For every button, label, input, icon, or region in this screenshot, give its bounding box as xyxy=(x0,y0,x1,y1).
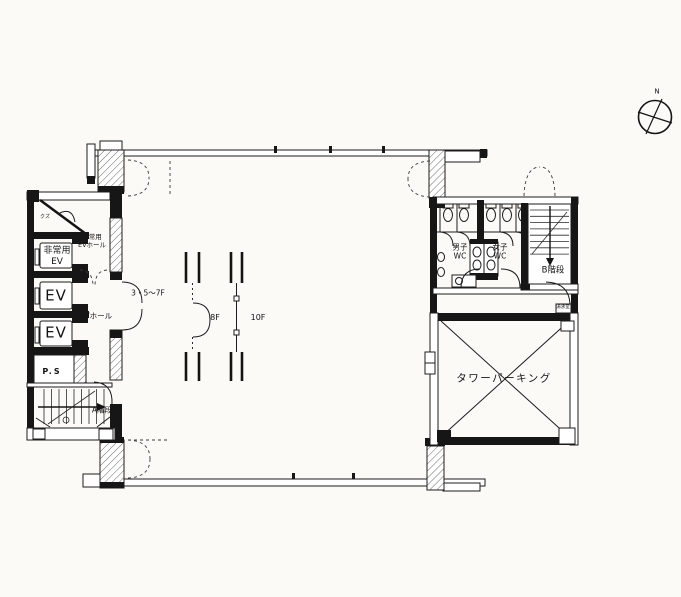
right-outer-wall xyxy=(571,197,578,313)
parking-top-wall xyxy=(435,313,577,321)
label-floors-3-5-7: 3・5〜7F xyxy=(131,288,165,297)
bottom-wall xyxy=(85,479,485,486)
pipe-shaft-room xyxy=(27,355,112,387)
door-arc xyxy=(408,179,430,197)
label-womens-wc: 女子 WC xyxy=(493,243,508,262)
column xyxy=(98,150,124,192)
door-arc xyxy=(128,178,149,196)
label-emergency-ev: 非常用 EV xyxy=(43,246,70,269)
label-emergency-ev-hall: 非常用 EVホール xyxy=(78,233,106,249)
counterweight xyxy=(35,288,39,304)
parking-right-wall xyxy=(570,313,578,445)
parking-left-wall xyxy=(430,313,438,445)
label-ev-2: EV xyxy=(45,324,67,343)
label-ev-1: EV xyxy=(45,287,67,306)
partition-10f xyxy=(231,252,242,381)
toilet-top-wall xyxy=(433,197,578,204)
column xyxy=(100,440,124,488)
stair-b xyxy=(521,203,578,290)
column xyxy=(429,150,445,198)
label-trash-room: クズ xyxy=(40,214,50,220)
door-arc xyxy=(193,320,210,337)
label-floor-8: 8F xyxy=(210,313,220,323)
label-pipe-shaft: P.S xyxy=(42,367,61,377)
floor-plan-linework xyxy=(0,0,681,597)
door-arc xyxy=(128,440,150,459)
door-arc xyxy=(540,167,555,196)
floor-plan-drawing: クズ 非常用 EVホール 非常用 EV EV EVホール 3・5〜7F EV P… xyxy=(0,0,681,597)
parking-bottom-wall xyxy=(437,437,578,445)
label-floor-10: 10F xyxy=(251,313,266,323)
label-tower-parking: タワーパーキング xyxy=(456,372,552,385)
label-north: N xyxy=(654,88,659,97)
exterior-walls xyxy=(83,141,487,491)
north-compass-icon xyxy=(638,99,672,134)
door-arc xyxy=(193,303,210,320)
door-arc xyxy=(128,459,150,478)
door-arc xyxy=(408,161,430,179)
counterweight xyxy=(35,327,39,343)
urinals xyxy=(438,253,445,277)
core-top-wall xyxy=(27,192,110,200)
counterweight xyxy=(35,249,39,265)
door-arc xyxy=(128,160,149,178)
top-wall xyxy=(88,150,487,156)
toilet-left-wall xyxy=(430,197,437,320)
wc-door-arc xyxy=(501,269,520,288)
door-arc xyxy=(524,167,540,196)
column xyxy=(427,446,444,490)
arrow-tail xyxy=(63,417,69,423)
label-kitchenette: 湯沸室 xyxy=(556,305,570,311)
label-stair-b: B階段 xyxy=(542,266,565,277)
label-stair-a: A階段 xyxy=(92,405,112,414)
label-mens-wc: 男子 WC xyxy=(453,243,468,262)
label-ev-hall: EVホール xyxy=(80,311,112,320)
partition-8f xyxy=(186,252,210,381)
